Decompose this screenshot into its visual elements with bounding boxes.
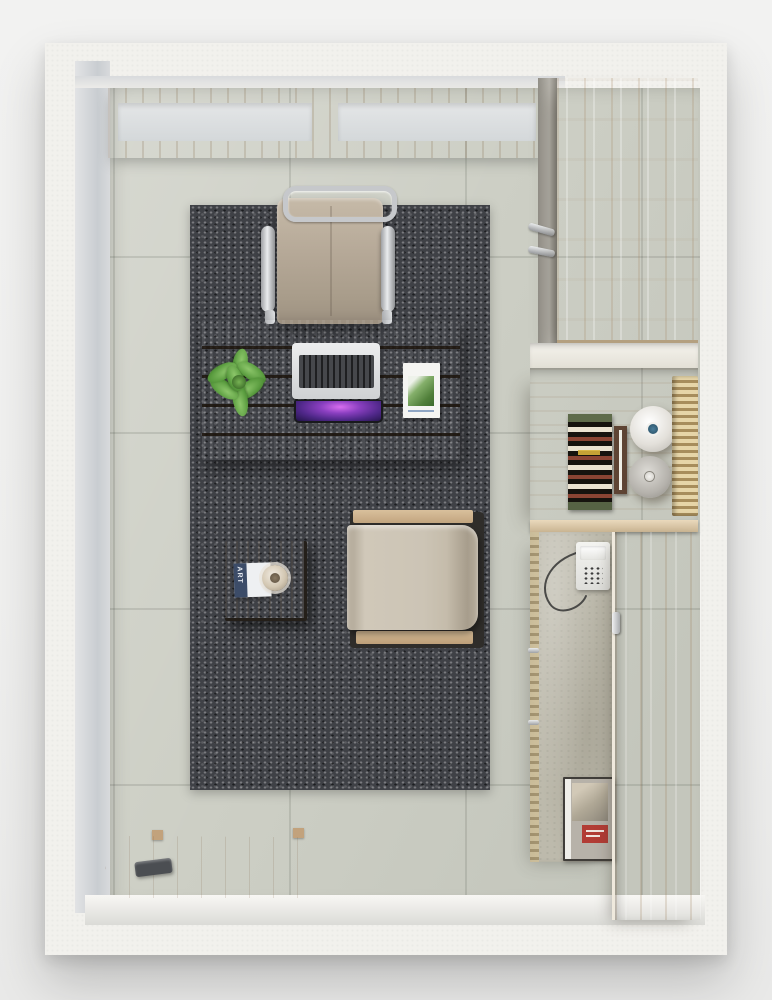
vase-white <box>630 406 676 452</box>
wall-recess-strip <box>538 78 557 348</box>
shelf-niche <box>530 343 698 368</box>
scene-canvas: ART <box>0 0 772 1000</box>
bamboo-mat <box>672 376 698 516</box>
shelf-edge <box>530 520 698 532</box>
book-label <box>582 825 608 843</box>
right-wall-units <box>528 78 700 920</box>
wall-bevel-left <box>75 61 110 913</box>
book-pages <box>565 779 571 859</box>
wall-bevel-top <box>75 76 565 88</box>
magazine-title: ART <box>236 566 244 584</box>
book-cover-image <box>572 783 608 821</box>
cabinet-door <box>612 532 701 920</box>
document <box>403 363 440 418</box>
small-hook <box>528 720 539 725</box>
book <box>563 777 615 861</box>
armchair-armrest-top <box>353 510 473 523</box>
side-table: ART <box>225 541 307 621</box>
laptop-screen <box>294 400 383 423</box>
telephone <box>576 542 610 590</box>
room-floor: ART <box>110 88 700 895</box>
door-handle <box>612 612 620 634</box>
artwork <box>568 414 612 510</box>
picture-frame <box>614 426 627 494</box>
laptop-keyboard <box>299 355 374 388</box>
telephone-handset <box>580 546 606 560</box>
telephone-keypad <box>583 566 603 584</box>
vase-gray <box>629 456 671 498</box>
chair-armrest-left <box>261 226 275 312</box>
window-pane <box>338 103 536 141</box>
chair-headrest-bar <box>283 186 397 222</box>
potted-plant <box>210 353 270 413</box>
armchair-cushion <box>347 525 478 630</box>
room-render: ART <box>45 43 727 955</box>
chair-armrest-right <box>381 226 395 312</box>
armchair-armrest-bottom <box>356 631 473 644</box>
window <box>108 88 546 158</box>
cup <box>262 565 288 591</box>
window-pane <box>118 103 312 141</box>
armchair <box>347 510 485 648</box>
plant-center <box>232 375 246 389</box>
wardrobe <box>557 78 698 343</box>
console-recess <box>530 368 698 520</box>
laptop <box>290 343 382 420</box>
board-post <box>293 828 304 838</box>
small-hook <box>528 648 539 653</box>
concrete-panel <box>530 532 612 862</box>
